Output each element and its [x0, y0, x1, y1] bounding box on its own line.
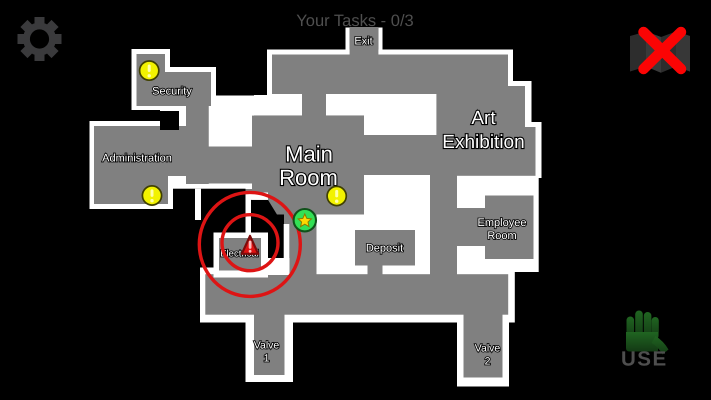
svg-text:Main: Main — [285, 142, 333, 167]
svg-text:Room: Room — [279, 165, 338, 190]
svg-text:Security: Security — [152, 86, 192, 98]
svg-text:USE: USE — [621, 348, 668, 371]
svg-text:Employee: Employee — [478, 217, 527, 229]
svg-text:2: 2 — [485, 356, 491, 368]
svg-text:Valve: Valve — [475, 343, 501, 355]
svg-text:1: 1 — [264, 353, 270, 365]
svg-text:Valve: Valve — [254, 340, 280, 352]
svg-text:Exhibition: Exhibition — [442, 132, 524, 153]
svg-text:Room: Room — [487, 230, 516, 242]
svg-text:Deposit: Deposit — [366, 243, 403, 255]
svg-text:Art: Art — [471, 108, 496, 129]
svg-text:Exit: Exit — [354, 36, 372, 48]
svg-text:Administration: Administration — [102, 153, 172, 165]
